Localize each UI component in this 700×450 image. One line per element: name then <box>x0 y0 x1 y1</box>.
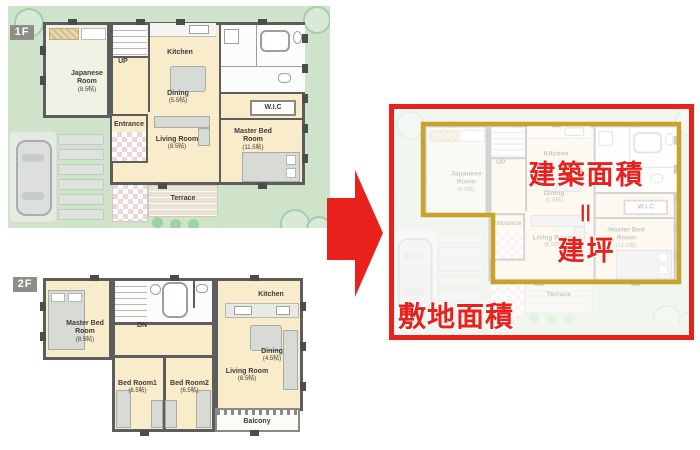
pillar <box>176 19 185 25</box>
room-size: (5.5帖) <box>153 98 203 105</box>
wall <box>221 92 305 94</box>
hall-2f <box>112 322 215 358</box>
pillar <box>68 19 77 25</box>
room-size: (4.5帖) <box>247 356 297 363</box>
result-panel: W.I.C Japanese Room (8.5帖) <box>389 104 694 340</box>
room-name: Bed Room2 <box>164 380 215 388</box>
pillar <box>302 124 308 133</box>
room-size: (11.5帖) <box>230 145 276 152</box>
floorplan-1f-panel: W.I.C Japanese Room (8.5帖) <box>8 6 330 228</box>
floorplan-2f-panel: 2F <box>10 272 325 444</box>
bathtub <box>260 30 290 52</box>
pillar <box>302 94 308 103</box>
pillar <box>300 382 306 391</box>
room-label-kitchen: Kitchen <box>155 49 205 57</box>
toilet <box>196 284 208 293</box>
room-label-japanese: Japanese Room (8.5帖) <box>64 70 110 94</box>
planter <box>58 194 104 205</box>
room-label-master: Master Bed Room (11.5帖) <box>230 128 276 152</box>
bush-icon <box>152 217 163 228</box>
pillar <box>300 342 306 351</box>
pillow <box>286 155 296 165</box>
entrance-tiles <box>112 132 146 161</box>
pillar <box>158 183 167 189</box>
wall <box>193 278 195 308</box>
room-size: (8.5帖) <box>64 87 110 94</box>
room-label-master-2f: Master Bed Room (8.5帖) <box>58 320 112 344</box>
closet <box>81 28 106 40</box>
partition <box>256 25 257 66</box>
bed <box>116 390 131 428</box>
wall <box>219 118 305 120</box>
pillar <box>40 302 46 311</box>
room-name: Dining <box>153 90 203 98</box>
room-name: Bed Room1 <box>112 380 163 388</box>
planter <box>58 149 104 160</box>
planter <box>58 134 104 145</box>
desk <box>151 400 163 428</box>
room-name: Dining <box>247 348 297 356</box>
washer <box>224 29 239 44</box>
sink <box>150 284 161 295</box>
room-label-bed2: Bed Room2 (6.5帖) <box>164 380 215 395</box>
room-name: Living Room <box>152 136 202 144</box>
pillar <box>40 46 46 55</box>
equals-label: ＝ <box>484 197 689 229</box>
room-label-dn: DN <box>132 322 152 330</box>
room-name: Master Bed Room <box>230 128 276 145</box>
planter <box>58 209 104 220</box>
room-size: (8.5帖) <box>222 376 272 383</box>
pillar <box>40 332 46 341</box>
room-size: (8.5帖) <box>58 337 112 344</box>
floor-badge-1f: 1F <box>10 25 34 40</box>
diagram-canvas: W.I.C Japanese Room (8.5帖) <box>0 0 700 450</box>
pillar <box>140 430 149 436</box>
room-size: (6.5帖) <box>164 388 215 395</box>
building-area-label: 建築面積 <box>484 153 689 192</box>
room-size: (6.5帖) <box>112 388 163 395</box>
closet <box>49 28 79 40</box>
pillow <box>51 293 65 302</box>
room-name: Living Room <box>222 368 272 376</box>
sink <box>234 306 252 315</box>
room-name: Japanese Room <box>64 70 110 87</box>
wall <box>219 22 221 185</box>
stove <box>189 25 209 34</box>
pillar <box>302 34 308 43</box>
pillar <box>40 76 46 85</box>
pillar <box>300 302 306 311</box>
pillar <box>136 19 145 25</box>
room-name: Master Bed Room <box>58 320 112 337</box>
pillow <box>286 168 296 178</box>
desk <box>165 400 177 428</box>
room-label-dining-2f: Dining (4.5帖) <box>247 348 297 363</box>
pillar <box>258 19 267 25</box>
equals-sign: ＝ <box>570 202 602 224</box>
arrow-right-icon <box>327 170 383 297</box>
pillar <box>302 154 308 163</box>
dining-table <box>170 66 206 92</box>
site-area-label: 敷地面積 <box>398 295 514 335</box>
planter <box>58 179 104 190</box>
stove <box>276 306 290 315</box>
pillar <box>250 275 259 281</box>
room-label-up: UP <box>113 58 133 66</box>
balcony-hatch <box>217 410 298 415</box>
pillar <box>170 275 179 281</box>
pillar <box>258 183 267 189</box>
tree-icon <box>306 216 330 228</box>
stairs-down <box>115 281 147 322</box>
pillow <box>68 293 82 302</box>
wall <box>148 22 150 112</box>
bed <box>196 390 211 428</box>
floor-badge-2f: 2F <box>13 277 37 292</box>
bathtub <box>162 282 188 318</box>
room-label-terrace: Terrace <box>158 195 208 203</box>
car-icon <box>16 140 52 216</box>
toilet <box>278 73 291 83</box>
pillar <box>90 275 99 281</box>
bush-icon <box>188 219 199 228</box>
pillar <box>250 430 259 436</box>
room-wic: W.I.C <box>250 100 296 116</box>
tsubo-label: 建坪 <box>484 229 689 268</box>
bush-icon <box>170 219 181 228</box>
room-label-living: Living Room (8.5帖) <box>152 136 202 151</box>
planter <box>58 164 104 175</box>
room-label-wic: W.I.C <box>252 102 294 114</box>
pillar <box>302 64 308 73</box>
partition <box>221 66 305 67</box>
room-label-balcony: Balcony <box>227 418 287 426</box>
room-label-kitchen-2f: Kitchen <box>246 291 296 299</box>
sofa <box>154 116 210 128</box>
sink <box>293 31 302 44</box>
room-label-bed1: Bed Room1 (6.5帖) <box>112 380 163 395</box>
room-label-entrance: Entrance <box>104 121 154 129</box>
room-size: (8.5帖) <box>152 144 202 151</box>
tree-icon <box>303 6 330 34</box>
room-label-living-2f: Living Room (8.5帖) <box>222 368 272 383</box>
stairs-up <box>113 25 147 56</box>
room-label-dining: Dining (5.5帖) <box>153 90 203 105</box>
